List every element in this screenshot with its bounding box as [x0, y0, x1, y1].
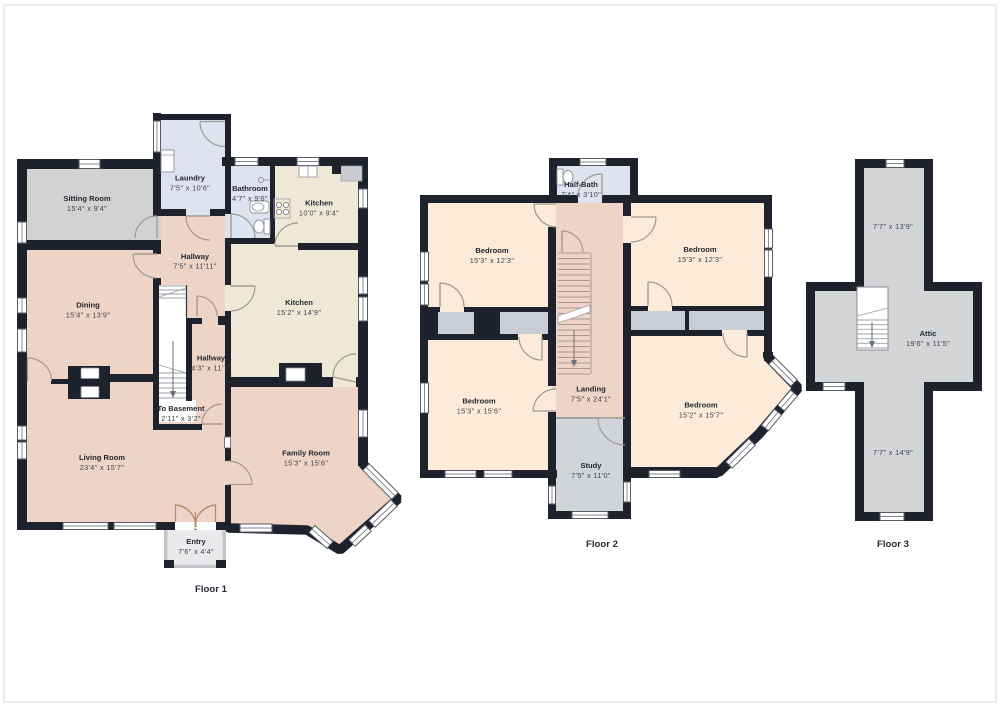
svg-text:Bedroom: Bedroom	[684, 401, 718, 410]
svg-text:7'5" x 24'1": 7'5" x 24'1"	[571, 394, 611, 403]
svg-text:7'5" x 11'11": 7'5" x 11'11"	[173, 262, 217, 271]
svg-text:4'3" x 11'7": 4'3" x 11'7"	[191, 363, 231, 372]
svg-text:7'7" x 13'9": 7'7" x 13'9"	[873, 222, 913, 231]
svg-text:15'4" x 9'4": 15'4" x 9'4"	[67, 204, 107, 213]
svg-text:15'3" x 12'3": 15'3" x 12'3"	[678, 255, 723, 264]
svg-text:Kitchen: Kitchen	[285, 298, 313, 307]
svg-text:Hallway: Hallway	[181, 252, 210, 261]
svg-text:Attic: Attic	[920, 329, 937, 338]
svg-text:Family Room: Family Room	[282, 449, 330, 458]
svg-text:7'4" x 3'10": 7'4" x 3'10"	[561, 190, 601, 199]
svg-text:15'2" x 15'7": 15'2" x 15'7"	[679, 410, 724, 419]
svg-text:19'6" x 11'5": 19'6" x 11'5"	[906, 339, 950, 348]
svg-text:Hallway: Hallway	[197, 354, 226, 363]
svg-text:15'4" x 13'9": 15'4" x 13'9"	[66, 310, 111, 319]
svg-text:10'0" x 9'4": 10'0" x 9'4"	[299, 208, 339, 217]
svg-text:Laundry: Laundry	[175, 174, 206, 183]
svg-text:7'5" x 10'6": 7'5" x 10'6"	[170, 183, 210, 192]
svg-text:7'7" x 14'9": 7'7" x 14'9"	[873, 448, 913, 457]
svg-text:Entry: Entry	[186, 537, 206, 546]
svg-text:Floor 2: Floor 2	[586, 539, 618, 550]
svg-text:Dining: Dining	[76, 301, 100, 310]
svg-text:Floor 3: Floor 3	[877, 539, 909, 550]
svg-text:Floor 1: Floor 1	[195, 584, 228, 595]
svg-text:Sitting Room: Sitting Room	[63, 194, 110, 203]
svg-text:Living Room: Living Room	[79, 453, 125, 462]
svg-text:15'2" x 14'9": 15'2" x 14'9"	[277, 308, 322, 317]
svg-text:Bathroom: Bathroom	[232, 184, 268, 193]
svg-text:15'3" x 15'6": 15'3" x 15'6"	[457, 406, 502, 415]
svg-text:Bedroom: Bedroom	[475, 246, 509, 255]
svg-text:Bedroom: Bedroom	[683, 245, 717, 254]
svg-text:Kitchen: Kitchen	[305, 199, 333, 208]
svg-text:Half-Bath: Half-Bath	[564, 180, 598, 189]
svg-text:4'7" x 9'6": 4'7" x 9'6"	[232, 194, 268, 203]
svg-text:Landing: Landing	[576, 385, 606, 394]
svg-text:23'4" x 15'7": 23'4" x 15'7"	[80, 463, 125, 472]
svg-text:2'11" x 3'2": 2'11" x 3'2"	[161, 414, 201, 423]
svg-text:15'3" x 15'6": 15'3" x 15'6"	[284, 458, 329, 467]
svg-text:15'3" x 12'3": 15'3" x 12'3"	[470, 256, 515, 265]
svg-text:Study: Study	[580, 461, 602, 470]
svg-text:7'6" x 4'4": 7'6" x 4'4"	[178, 547, 214, 556]
svg-text:To Basement: To Basement	[157, 404, 205, 413]
svg-text:7'5" x 11'0": 7'5" x 11'0"	[571, 471, 611, 480]
svg-text:Bedroom: Bedroom	[462, 397, 496, 406]
